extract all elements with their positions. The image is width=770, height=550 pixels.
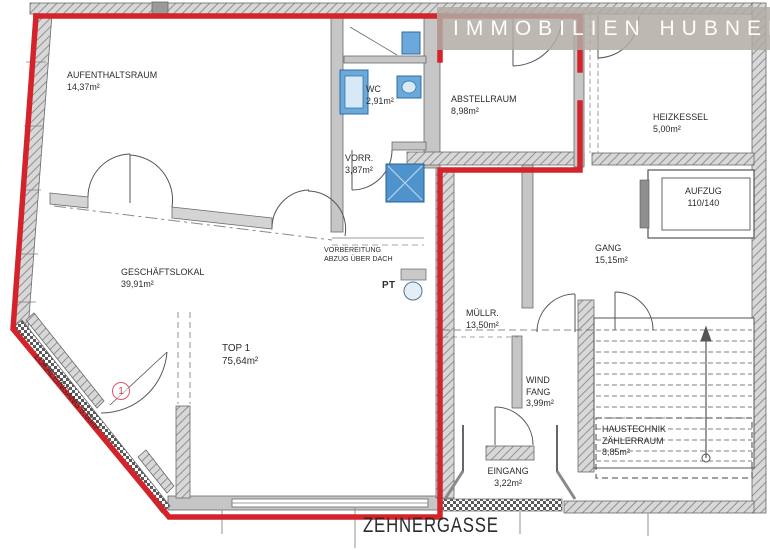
eingang-door-arc [495,407,533,445]
double-door-left-arc [88,154,130,197]
brand-banner: IMMOBILIEN HUBNER [437,7,770,50]
unit-number-marker: 1 [112,382,130,400]
room-label-pt: PT [382,279,396,292]
room-label-abstellraum: ABSTELLRAUM 8,98m² [451,94,517,117]
door-swings [88,16,653,445]
brand-name: IMMOBILIEN HUBNER [453,17,770,40]
entrance-steps [442,499,562,511]
windfang-door-arc [537,294,575,332]
room-label-vorraum: VORR. 3,87m² [345,153,373,176]
room-label-windfang: WIND FANG 3,99m² [526,375,554,410]
room-label-heizkessel: HEIZKESSEL 5,00m² [653,112,708,135]
room-label-haustechnik: HAUSTECHNIK ZÄHLERRAUM 8,85m² [602,424,666,459]
room-label-muellraum: MÜLLR. 13,50m² [466,308,499,331]
room-label-vorbereitung: VORBEREITUNG ABZUG ÜBER DACH [324,245,393,264]
room-label-eingang: EINGANG 3,22m² [478,466,538,489]
room-label-wc: WC 2,91m² [366,84,394,107]
floorplan-page: AUFENTHALTSRAUM 14,37m² WC 2,91m² VORR. … [0,0,770,550]
room-label-aufenthaltsraum: AUFENTHALTSRAUM 14,37m² [67,70,157,93]
room-label-aufzug: AUFZUG 110/140 [662,186,745,209]
street-name-label: ZEHNERGASSE [363,514,499,538]
room-label-gang: GANG 15,15m² [595,243,628,266]
pt-basin [404,282,422,300]
room-label-top1: TOP 1 75,64m² [222,342,258,368]
room-label-geschaeftslokal: GESCHÄFTSLOKAL 39,91m² [121,267,204,290]
small-fixture [402,32,420,54]
